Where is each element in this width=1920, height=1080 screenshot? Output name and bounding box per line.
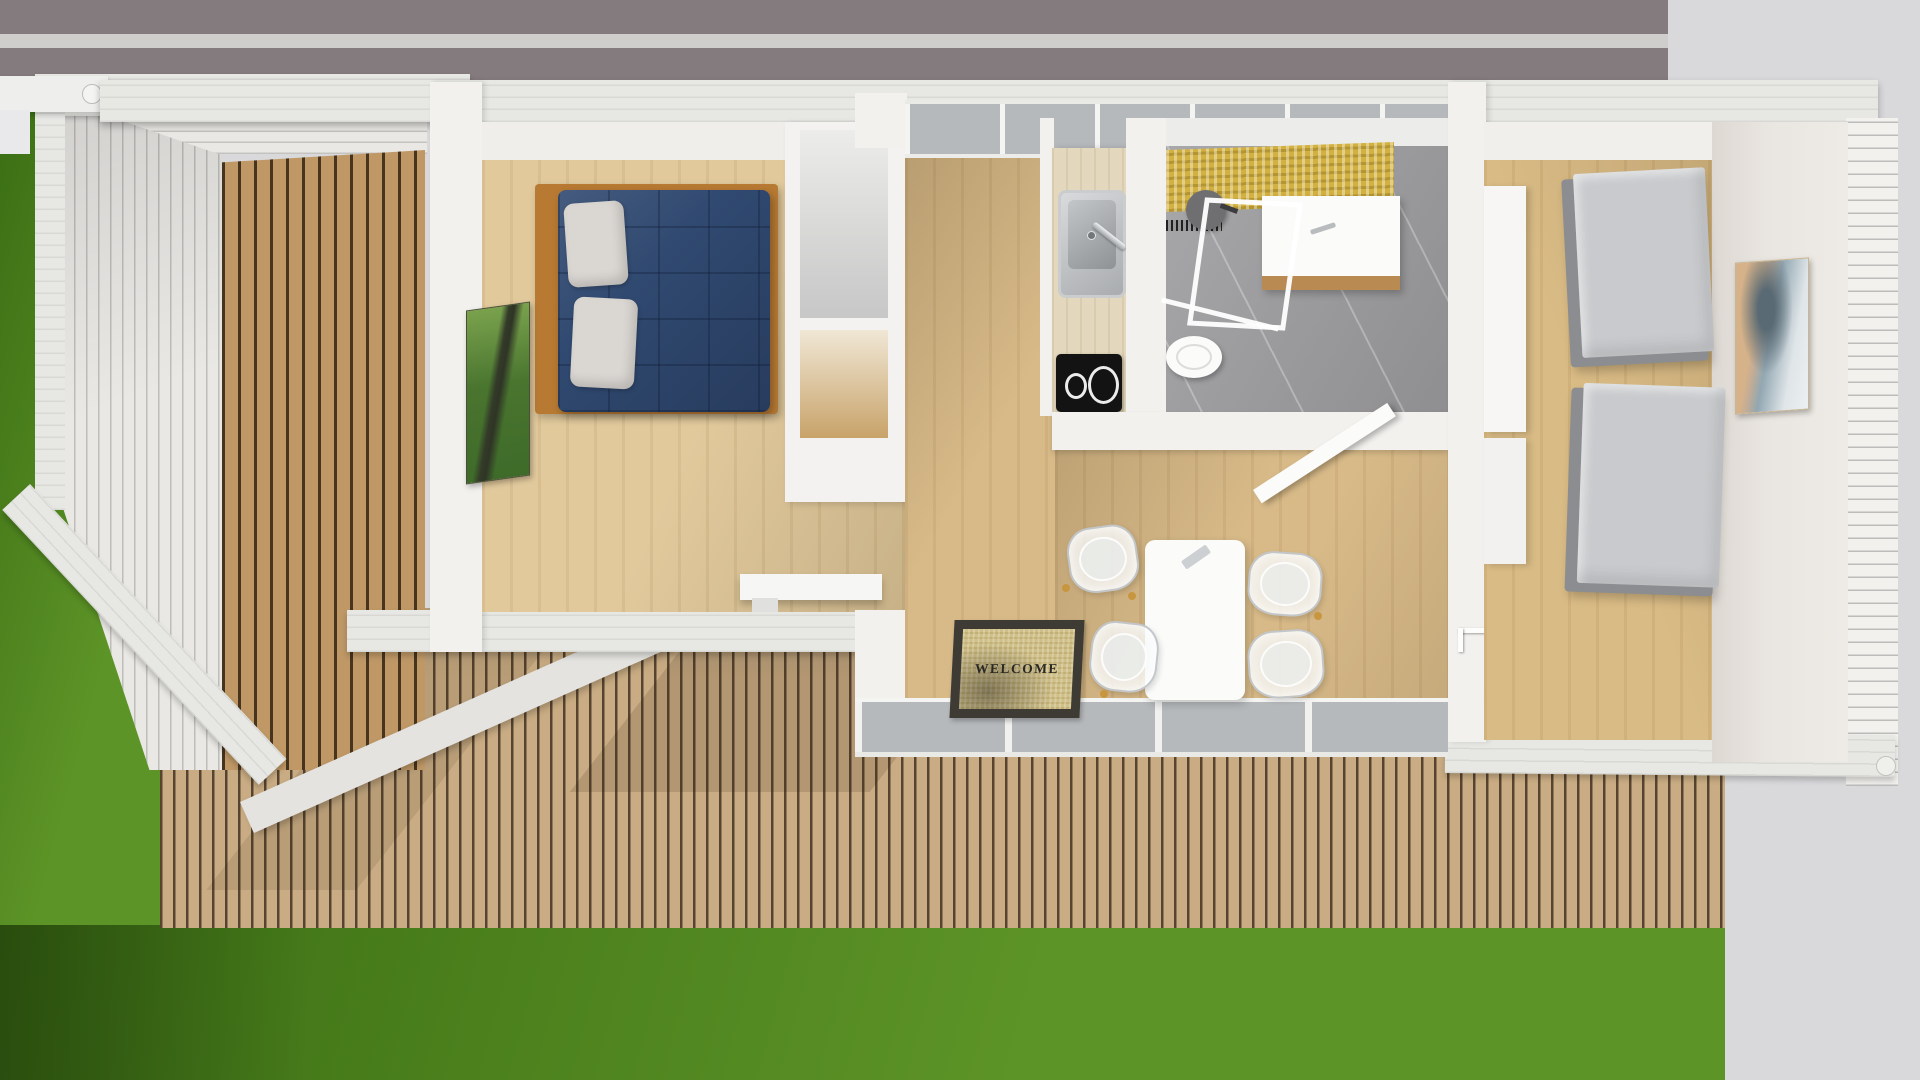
guest-bed-1-mattress (1573, 167, 1714, 358)
cooktop-burner-small (1065, 373, 1087, 399)
guest-bed-1 (1561, 173, 1709, 368)
cooktop-burner-large (1088, 366, 1119, 404)
house-east-wall (1846, 118, 1898, 786)
vanity-faucet (1310, 222, 1336, 235)
lawn-shadow (0, 925, 1725, 1080)
dining-chair-2 (1087, 619, 1162, 696)
kitchen-bathroom-wall (1126, 118, 1166, 416)
welcome-doormat: WELCOME (949, 620, 1084, 718)
beam-pole (82, 84, 102, 104)
guest-bed-2-mattress (1577, 383, 1726, 588)
hall-floor (905, 148, 1055, 700)
carport-deck (222, 150, 425, 770)
wardrobe-upper (1484, 186, 1526, 432)
open-shelving-unit (785, 122, 905, 502)
lawn-bottom (0, 925, 1725, 1080)
table-item (1181, 544, 1211, 569)
wardrobe-lower (1484, 438, 1526, 564)
shelf-cubby-1 (800, 130, 888, 318)
chair-leg-dot-4 (1314, 612, 1322, 620)
forest-artwork (466, 302, 530, 485)
sliding-glass-doors (855, 698, 1448, 757)
bedroom2-east-wall-face (1712, 122, 1848, 762)
dining-chair-3 (1246, 549, 1324, 618)
sink-drain (1087, 231, 1096, 240)
floorplan-3d-render: WELCOME (0, 0, 1920, 1080)
road-marking (0, 34, 1668, 48)
toilet (1166, 336, 1222, 378)
floating-desk (740, 574, 882, 600)
hall-wall-bottom-stub (855, 610, 907, 702)
door-handle-grip (1458, 628, 1463, 652)
carport-frame-left (35, 74, 65, 510)
dining-chair-4 (1246, 627, 1327, 700)
bed-pillow-2 (570, 296, 639, 389)
chair-leg-dot-2 (1128, 592, 1136, 600)
hall-wall-top-stub (855, 93, 907, 148)
bed-pillow-1 (563, 200, 629, 288)
chair-leg-dot-1 (1062, 584, 1070, 592)
kitchen-sink (1058, 190, 1126, 298)
bedroom-south-wall (347, 610, 858, 652)
chair-leg-dot-3 (1100, 690, 1108, 698)
bathroom-ceiling-edge (1166, 118, 1448, 148)
welcome-text: WELCOME (959, 629, 1075, 709)
seascape-artwork (1735, 257, 1809, 414)
toilet-seat (1176, 344, 1212, 370)
wall-end-pole (1876, 756, 1896, 776)
dining-table (1145, 540, 1245, 700)
induction-cooktop (1056, 354, 1122, 412)
hall-floor-shadow (905, 148, 1055, 700)
shelf-cubby-2 (800, 330, 888, 438)
guest-bed-2 (1564, 387, 1719, 596)
neighbor-block (0, 110, 30, 154)
bedroom2-west-wall (1448, 82, 1486, 742)
desk-bracket (752, 598, 778, 612)
